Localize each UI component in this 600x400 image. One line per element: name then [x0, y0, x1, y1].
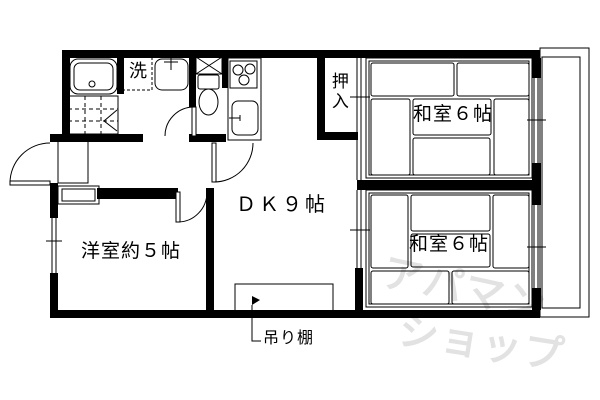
tatami-mat — [371, 63, 454, 96]
wall-between-tatami — [357, 180, 532, 190]
toilet-shelf-cross — [196, 57, 222, 74]
wall-toilet-left — [189, 58, 196, 107]
wall-below-bathroom — [50, 134, 143, 142]
bathtub-drain — [89, 81, 95, 87]
entrance-door-arc — [10, 143, 50, 183]
tatami-mat — [452, 271, 529, 304]
dk-door-leaf — [212, 143, 216, 182]
floorplan-canvas: アパマン ショップ — [0, 0, 600, 400]
label-washitsu-bottom: 和室６帖 — [409, 235, 489, 255]
balcony-hatch — [542, 57, 580, 308]
yoshitsu-door-arc — [178, 192, 207, 222]
entrance-door-leaf — [10, 181, 50, 185]
fusuma-partitions — [350, 58, 370, 268]
toilet-tank — [198, 75, 219, 89]
hanging-shelf-outline — [235, 284, 333, 310]
tatami-mat — [371, 271, 449, 304]
wall-bath-right — [117, 58, 124, 94]
label-yoshitsu: 洋室約５帖 — [81, 242, 181, 262]
tatami-mat — [493, 195, 529, 268]
tatami-mat — [413, 138, 490, 175]
dk-door-arc — [214, 143, 253, 182]
tatami-mat — [411, 195, 490, 231]
kitchen — [228, 58, 261, 140]
window-yoshitsu — [52, 218, 56, 273]
wall-dk-west — [206, 188, 214, 310]
wall-dk-east-lower — [355, 268, 363, 310]
fusuma-top — [357, 58, 361, 180]
yoshitsu-door-leaf — [176, 192, 180, 222]
label-dk: ＤＫ９帖 — [236, 194, 328, 215]
washroom-door-arc — [165, 107, 194, 136]
label-oshiire: 押入 — [328, 72, 346, 112]
tatami-mat — [494, 99, 529, 175]
shoe-cabinet-inner — [62, 189, 95, 201]
genkan-floor-hatch — [58, 139, 88, 183]
washroom-door-leaf — [192, 107, 196, 136]
stove-burner — [233, 65, 243, 75]
fusuma-bottom — [357, 190, 361, 268]
label-washitsu-top: 和室６帖 — [413, 105, 493, 125]
tatami-mat — [371, 195, 408, 268]
wall-closet-left — [317, 57, 325, 140]
wall-left-lower — [50, 273, 58, 310]
bathroom — [68, 59, 118, 134]
tatami-mat — [371, 99, 410, 175]
wall-left-mid — [50, 183, 58, 218]
leader-flag — [252, 296, 260, 305]
stove-burner — [239, 75, 249, 85]
balcony-outline — [540, 48, 589, 317]
wall-toilet-kitchen — [222, 58, 228, 88]
toilet-room — [196, 57, 222, 115]
wall-bottom — [50, 310, 540, 318]
label-laundry: 洗 — [129, 63, 147, 82]
wall-closet-bottom — [317, 132, 358, 140]
stove-burner — [245, 64, 255, 74]
bathtub-inner — [74, 63, 113, 90]
toilet-bowl — [199, 89, 218, 115]
tatami-mat — [457, 63, 529, 96]
balcony — [540, 48, 589, 317]
wall-yoshitsu-top — [97, 188, 178, 199]
kitchen-faucet — [229, 115, 240, 121]
label-tsuridana: 吊り棚 — [263, 330, 314, 347]
